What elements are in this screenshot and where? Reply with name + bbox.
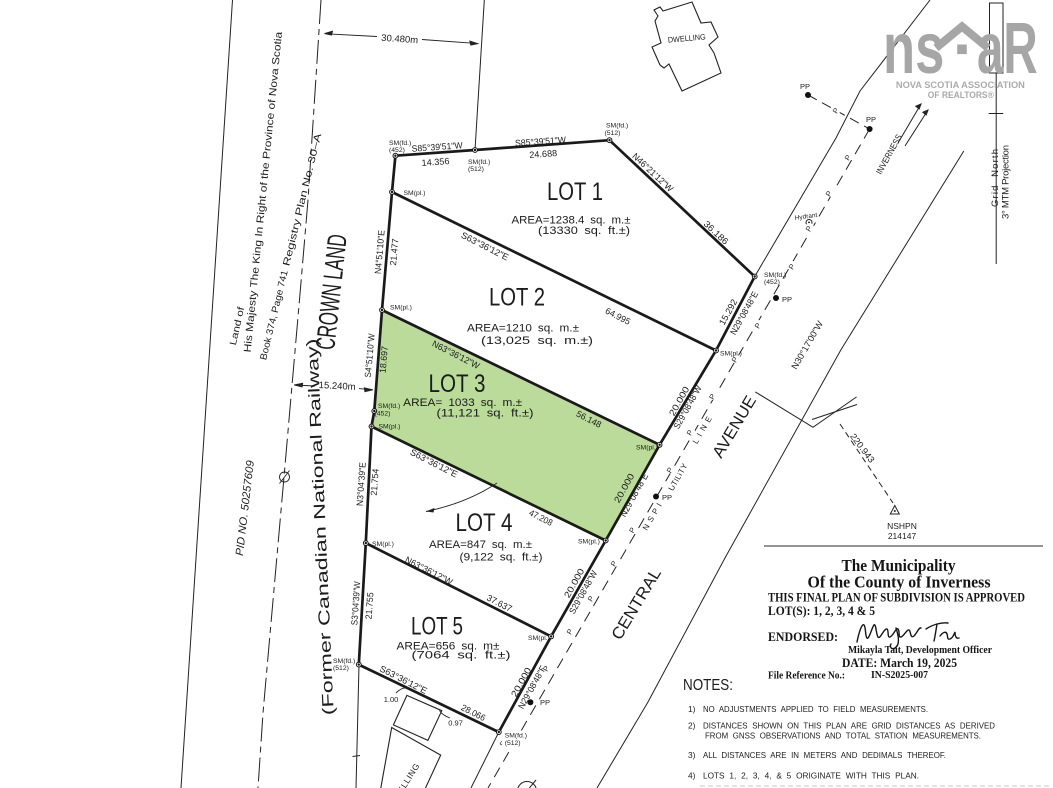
svg-text:(512): (512) (333, 665, 349, 672)
svg-text:SM(fd.): SM(fd.) (606, 123, 628, 130)
svg-text:21.754: 21.754 (369, 468, 381, 496)
svg-text:(452): (452) (764, 279, 780, 286)
svg-text:15.240m: 15.240m (318, 380, 356, 393)
svg-text:LOT 1: LOT 1 (547, 178, 603, 206)
svg-text:214147: 214147 (888, 531, 917, 541)
svg-text:(452): (452) (375, 410, 391, 417)
svg-text:1): 1) (688, 704, 696, 714)
svg-text:3° MTM Projection: 3° MTM Projection (1001, 145, 1012, 219)
svg-text:LOT 5: LOT 5 (411, 613, 463, 641)
svg-text:AREA=1210 sq. m.±: AREA=1210 sq. m.± (467, 323, 579, 335)
svg-text:ns: ns (883, 9, 944, 89)
svg-text:SM(pl.): SM(pl.) (720, 351, 742, 358)
svg-text:IN-S2025-007: IN-S2025-007 (871, 670, 928, 681)
svg-text:SM(fd.): SM(fd.) (505, 733, 527, 740)
svg-text:OF REALTORS®: OF REALTORS® (928, 90, 994, 101)
svg-text:SM(fd.): SM(fd.) (389, 140, 411, 147)
svg-text:SM(pl.): SM(pl.) (528, 635, 550, 642)
svg-text:SM(pl.): SM(pl.) (636, 445, 658, 452)
svg-text:SM(pl.): SM(pl.) (404, 190, 426, 197)
svg-text:LOT 2: LOT 2 (489, 284, 545, 312)
svg-text:NSHPN: NSHPN (887, 521, 917, 531)
svg-text:DATE: March 19, 2025: DATE: March 19, 2025 (842, 655, 957, 670)
svg-text:(512): (512) (505, 740, 521, 747)
svg-text:FROM GNSS OBSERVATIONS AND TOT: FROM GNSS OBSERVATIONS AND TOTAL STATION… (705, 731, 981, 741)
svg-text:4): 4) (688, 771, 696, 781)
svg-text:SM(fd.): SM(fd.) (468, 159, 490, 166)
svg-text:1.00: 1.00 (384, 695, 399, 704)
svg-text:(9,122 sq. ft.±): (9,122 sq. ft.±) (460, 552, 543, 564)
svg-text:THIS FINAL PLAN OF SUBDIVISION: THIS FINAL PLAN OF SUBDIVISION IS APPROV… (768, 591, 1025, 605)
svg-text:LOTS 1, 2, 3, 4, & 5 ORIGINATE: LOTS 1, 2, 3, 4, & 5 ORIGINATE WITH THIS… (703, 771, 919, 781)
svg-text:14.356: 14.356 (421, 156, 450, 168)
svg-text:24.688: 24.688 (529, 148, 558, 160)
svg-text:SM(pl.): SM(pl.) (578, 539, 600, 546)
svg-text:PP: PP (800, 82, 810, 91)
svg-text:(13,025 sq. m.±): (13,025 sq. m.±) (481, 335, 593, 347)
svg-text:SM(fd.): SM(fd.) (333, 658, 355, 665)
svg-text:0.97: 0.97 (448, 719, 463, 728)
svg-text:SM(fd.): SM(fd.) (378, 403, 400, 410)
svg-text:NO ADJUSTMENTS APPLIED TO FIEL: NO ADJUSTMENTS APPLIED TO FIELD MEASUREM… (703, 704, 928, 714)
svg-text:(512): (512) (468, 166, 484, 173)
svg-text:SM(pl.): SM(pl.) (379, 423, 401, 430)
svg-text:NOTES:: NOTES: (683, 677, 733, 694)
svg-text:(11,121 sq. ft.±): (11,121 sq. ft.±) (437, 408, 534, 420)
svg-text:PP: PP (866, 115, 876, 124)
svg-text:LOT 3: LOT 3 (429, 370, 486, 398)
svg-text:LOT(S): 1, 2, 3, 4 & 5: LOT(S): 1, 2, 3, 4 & 5 (768, 604, 875, 618)
svg-text:LOT 4: LOT 4 (456, 509, 513, 537)
svg-text:(512): (512) (605, 130, 621, 137)
svg-text:(7064 sq. ft.±): (7064 sq. ft.±) (412, 650, 511, 662)
svg-text:(452): (452) (389, 147, 405, 154)
svg-text:File Reference No.:: File Reference No.: (768, 671, 845, 682)
svg-text:ALL DISTANCES ARE IN METERS AN: ALL DISTANCES ARE IN METERS AND DEDIMALS… (703, 750, 946, 760)
svg-text:SM(pl.): SM(pl.) (372, 541, 394, 548)
svg-text:AREA=847 sq. m.±: AREA=847 sq. m.± (429, 539, 532, 551)
svg-text:ENDORSED:: ENDORSED: (768, 629, 838, 644)
svg-text:PP: PP (540, 698, 550, 707)
svg-text:PP: PP (782, 295, 792, 304)
svg-text:(13330 sq. ft.±): (13330 sq. ft.±) (538, 225, 630, 237)
svg-text:2): 2) (688, 721, 696, 731)
svg-text:PP: PP (662, 493, 672, 502)
svg-text:SM(fd.): SM(fd.) (764, 272, 786, 279)
svg-text:DISTANCES SHOWN ON THIS PLAN A: DISTANCES SHOWN ON THIS PLAN ARE GRID DI… (703, 721, 995, 731)
svg-text:3): 3) (688, 750, 696, 760)
svg-text:SM(pl.): SM(pl.) (390, 305, 412, 312)
svg-text:21.755: 21.755 (364, 592, 376, 620)
svg-text:Of the County of Inverness: Of the County of Inverness (808, 573, 992, 592)
